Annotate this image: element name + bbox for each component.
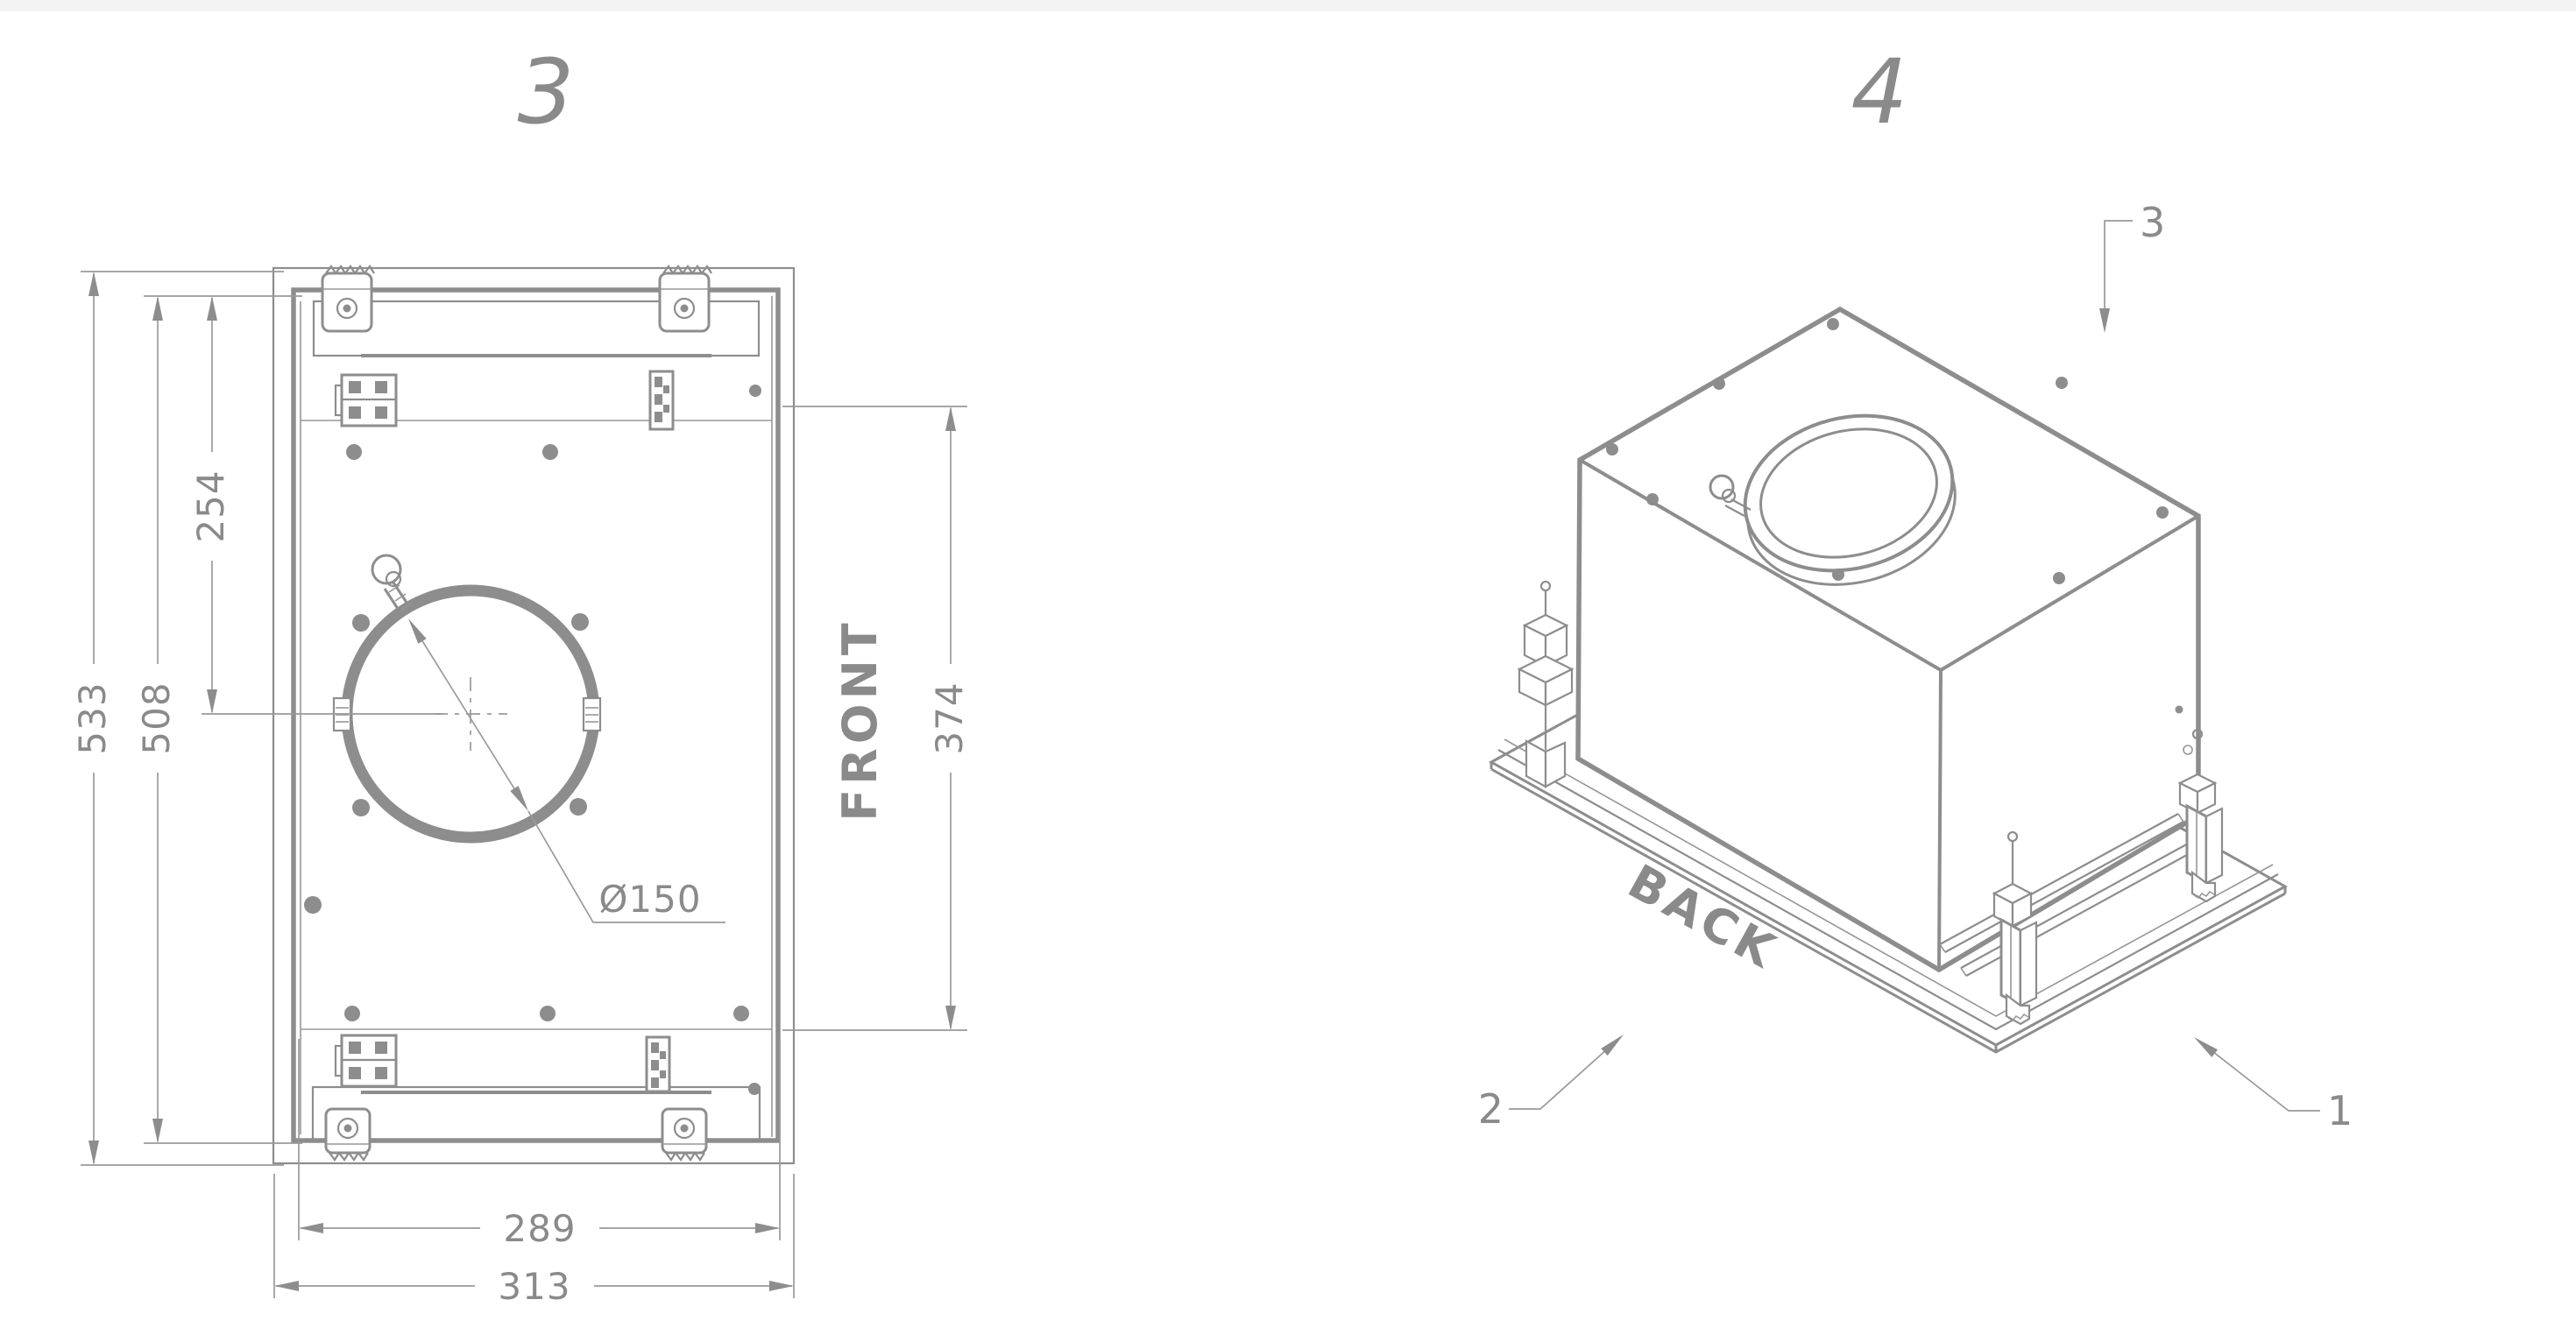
- hinge-bracket-top-right: [650, 371, 673, 429]
- top-strip: [0, 0, 2576, 11]
- duct-rim-tab-right: [584, 698, 600, 731]
- drawing-canvas: 3: [0, 0, 2576, 1335]
- plan-view: 3: [71, 40, 971, 1308]
- callout-3-label: 3: [2140, 199, 2165, 246]
- mounting-clip-top-left: [322, 266, 374, 331]
- figure-number-4: 4: [1851, 40, 1908, 145]
- hinge-bracket-bottom-left: [336, 1035, 396, 1086]
- callout-1-label: 1: [2327, 1087, 2353, 1134]
- mounting-clip-top-right: [660, 266, 711, 331]
- hinge-bracket-top-left: [336, 375, 396, 426]
- dim-289-label: 289: [503, 1207, 576, 1250]
- dim-374-label: 374: [928, 682, 971, 754]
- dim-duct-offset: 254: [189, 296, 232, 714]
- callout-right: 1: [2194, 1037, 2353, 1134]
- dim-533-label: 533: [71, 682, 114, 754]
- callout-left: 2: [1478, 1035, 1624, 1133]
- mounting-foot-right: [662, 1109, 706, 1160]
- technical-drawing-page: 3: [0, 0, 2576, 1335]
- figure-number-3: 3: [518, 40, 575, 145]
- callout-2-label: 2: [1478, 1085, 1504, 1133]
- callout-top: 3: [2099, 199, 2165, 333]
- dim-508-label: 508: [135, 682, 178, 754]
- duct-diameter-label: Ø150: [598, 878, 701, 921]
- left-hanger-rod: [1519, 582, 1572, 787]
- front-label: FRONT: [832, 618, 888, 821]
- hinge-bracket-bottom-right: [647, 1037, 669, 1091]
- mounting-foot-left: [326, 1109, 370, 1160]
- iso-view: 4: [1478, 40, 2353, 1134]
- dim-313-label: 313: [498, 1265, 570, 1308]
- dim-254-label: 254: [189, 470, 232, 542]
